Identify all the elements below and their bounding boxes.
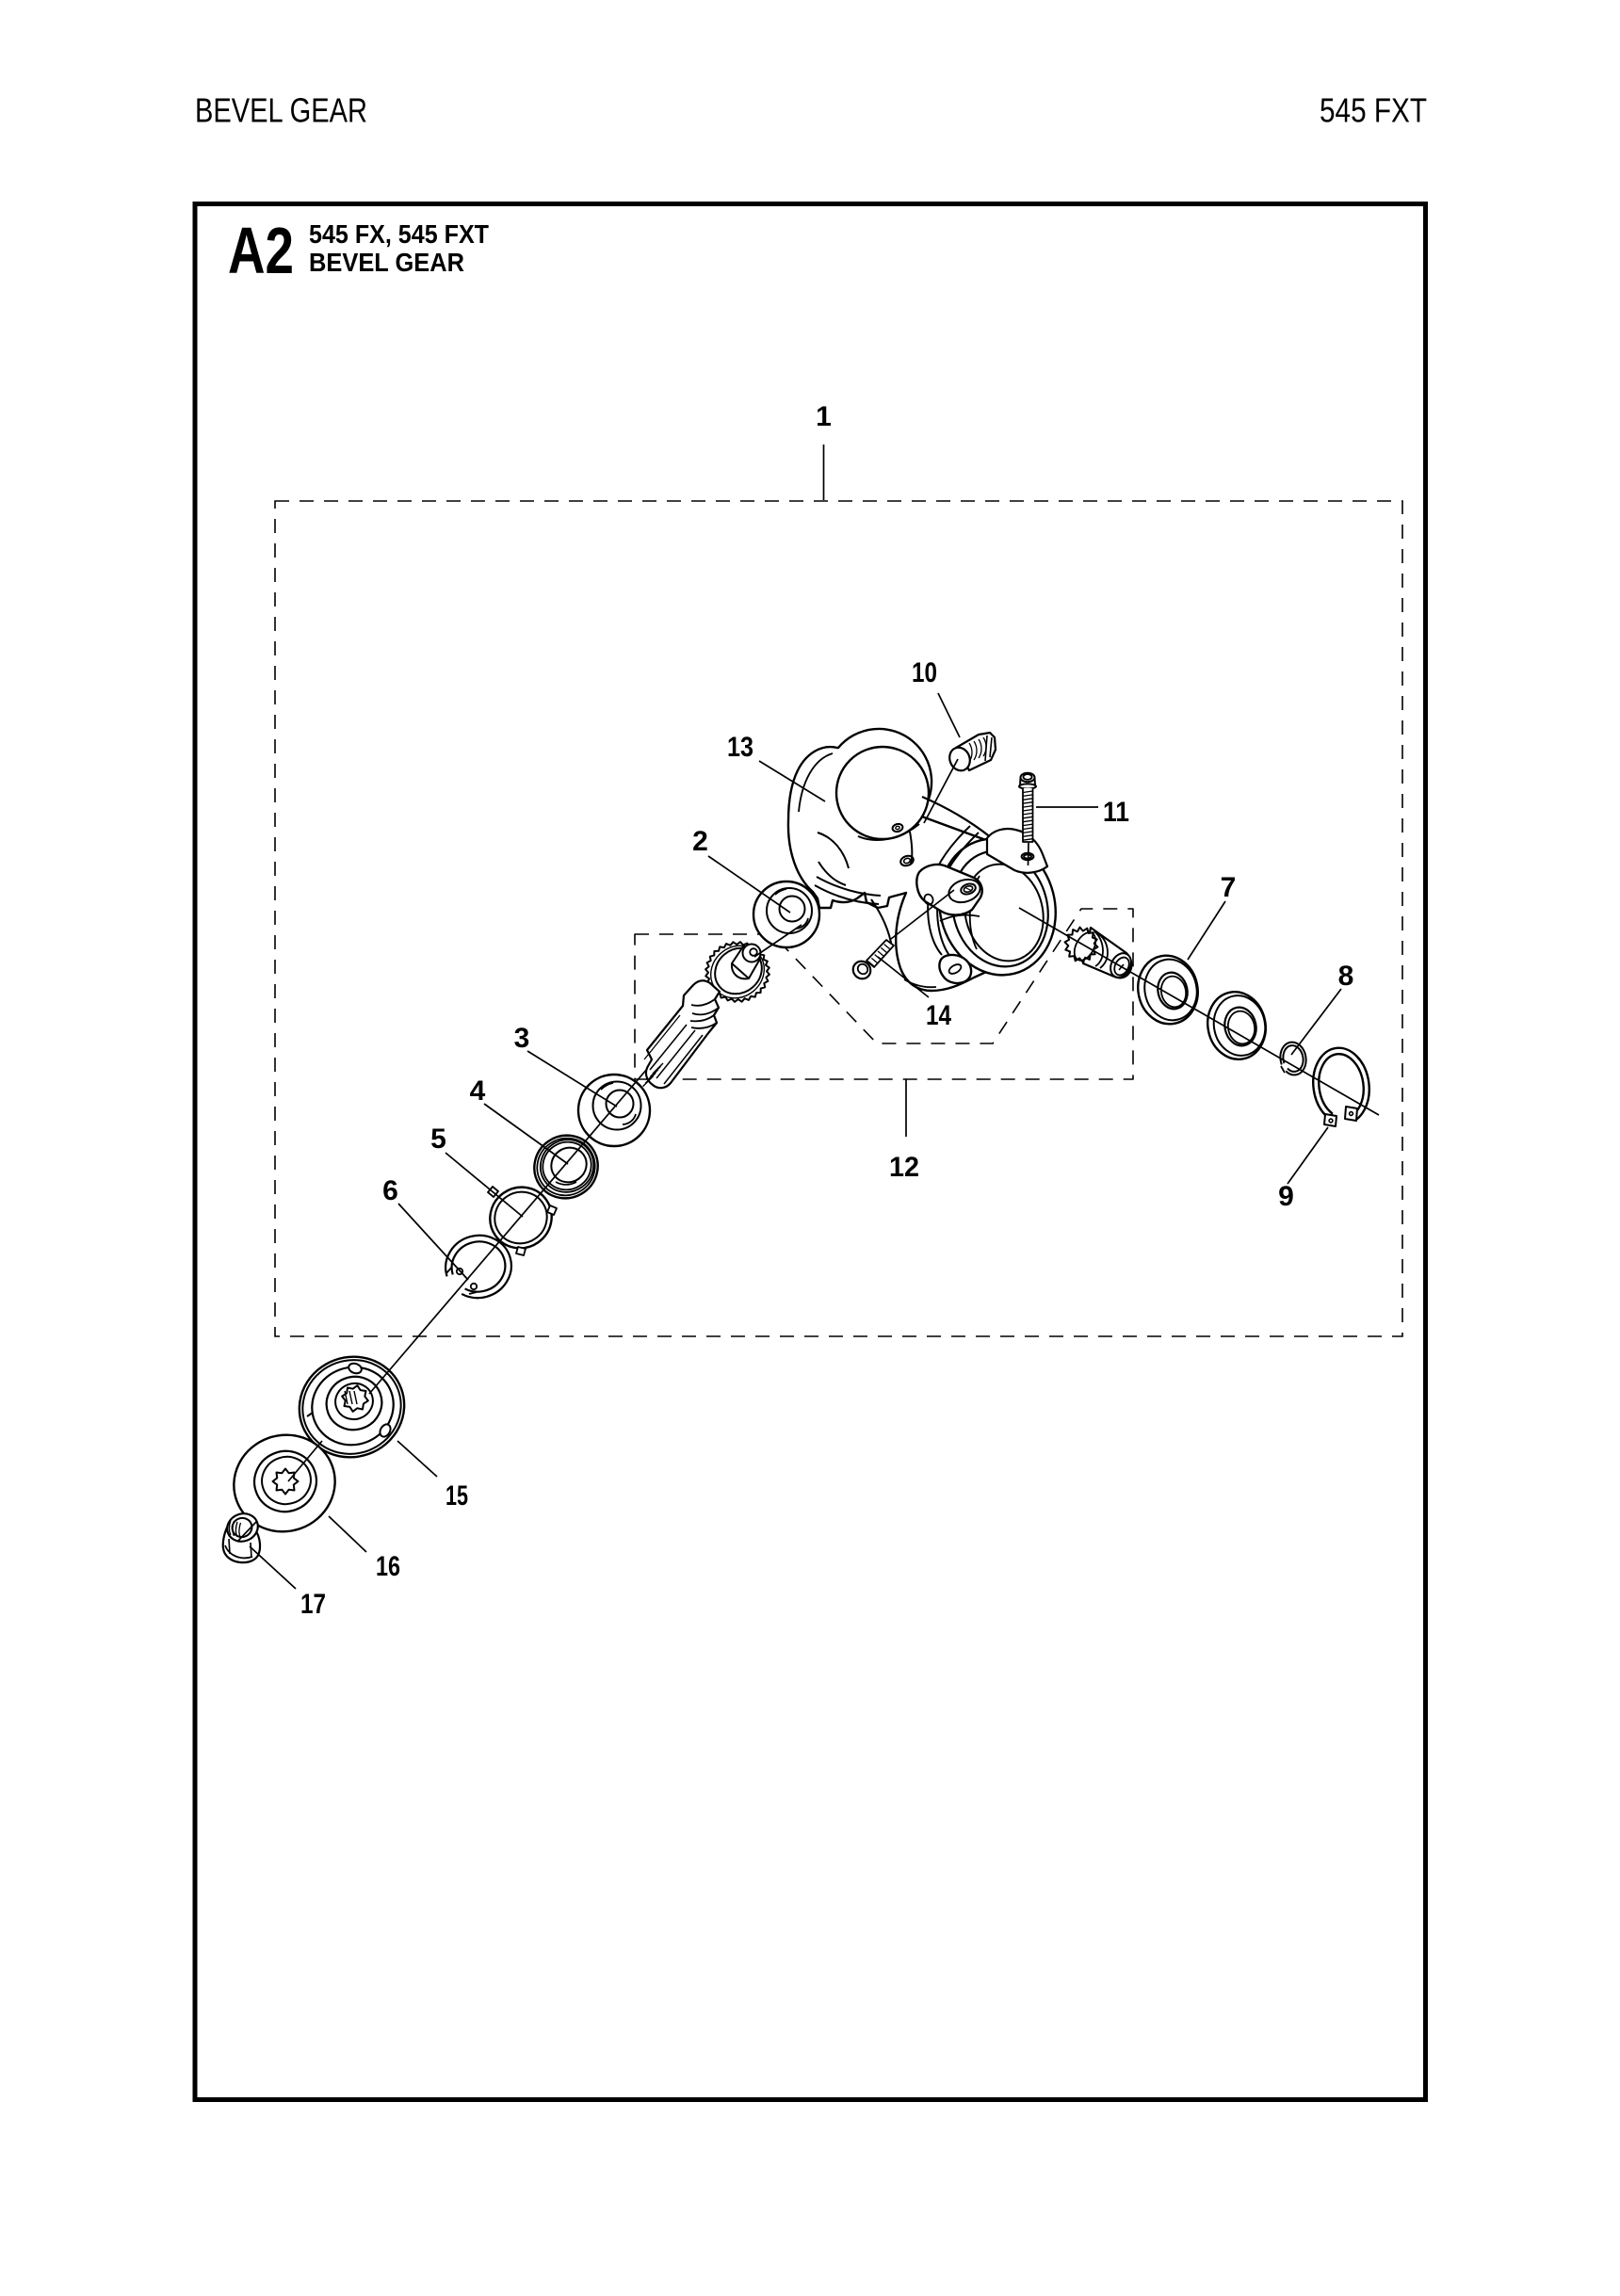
svg-text:10: 10 (912, 657, 937, 688)
svg-text:5: 5 (430, 1124, 446, 1155)
svg-text:12: 12 (889, 1152, 919, 1183)
svg-text:13: 13 (727, 732, 753, 763)
svg-text:11: 11 (1103, 797, 1129, 828)
svg-text:2: 2 (692, 826, 708, 857)
svg-text:BEVEL GEAR: BEVEL GEAR (309, 248, 464, 277)
svg-text:BEVEL GEAR: BEVEL GEAR (195, 91, 367, 130)
svg-text:9: 9 (1278, 1181, 1294, 1212)
svg-text:4: 4 (470, 1075, 486, 1107)
svg-text:7: 7 (1221, 872, 1237, 903)
svg-text:1: 1 (816, 401, 832, 432)
svg-text:16: 16 (376, 1551, 400, 1582)
svg-text:6: 6 (382, 1175, 398, 1206)
svg-text:A2: A2 (228, 214, 294, 287)
svg-text:14: 14 (926, 1000, 951, 1031)
svg-text:545 FX, 545 FXT: 545 FX, 545 FXT (309, 219, 489, 249)
svg-text:17: 17 (300, 1589, 326, 1620)
svg-text:8: 8 (1338, 961, 1354, 992)
svg-text:15: 15 (445, 1480, 468, 1512)
svg-text:3: 3 (514, 1023, 530, 1054)
svg-text:545 FXT: 545 FXT (1320, 91, 1427, 130)
